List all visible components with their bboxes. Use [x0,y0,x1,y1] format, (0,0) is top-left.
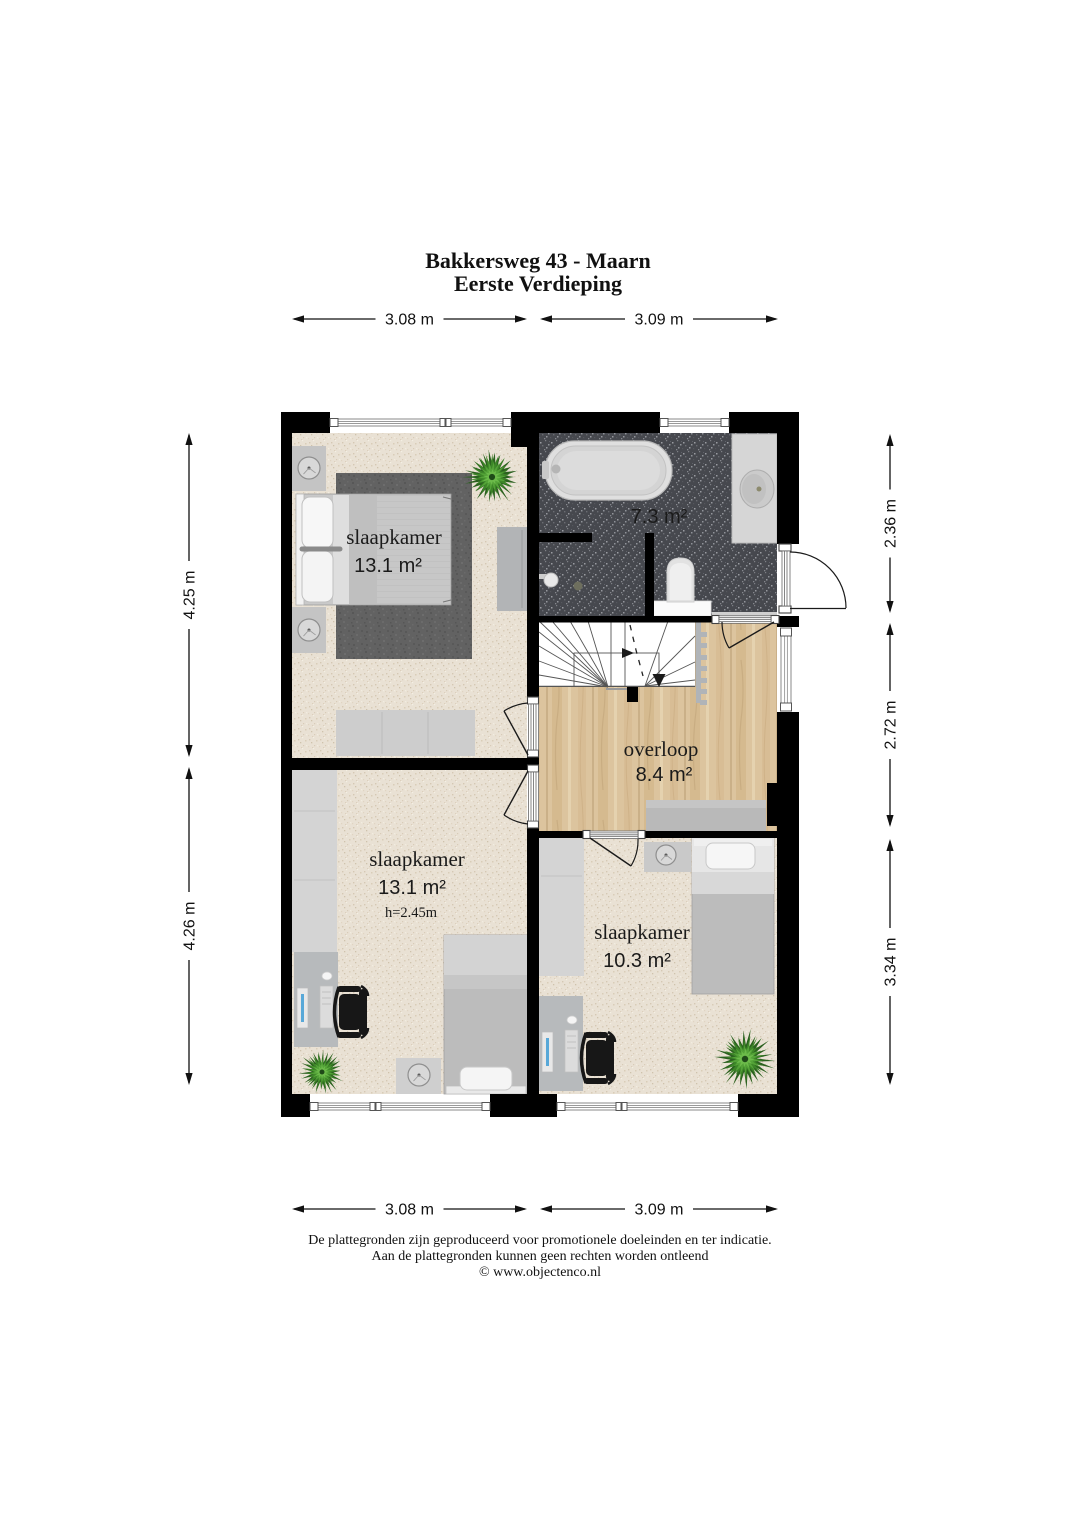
svg-text:slaapkamer: slaapkamer [369,847,465,871]
svg-text:De plattegronden zijn geproduc: De plattegronden zijn geproduceerd voor … [308,1233,771,1248]
svg-text:slaapkamer: slaapkamer [594,920,690,944]
svg-text:4.25 m: 4.25 m [182,571,199,620]
svg-text:overloop: overloop [624,737,699,761]
svg-text:h=2.45m: h=2.45m [385,905,438,921]
svg-text:3.08 m: 3.08 m [385,312,434,329]
svg-text:2.72 m: 2.72 m [883,701,900,750]
svg-text:slaapkamer: slaapkamer [346,525,442,549]
svg-text:Eerste Verdieping: Eerste Verdieping [454,271,622,296]
svg-text:Aan de plattegronden kunnen ge: Aan de plattegronden kunnen geen rechten… [371,1249,708,1264]
svg-text:3.09 m: 3.09 m [635,1202,684,1219]
svg-text:3.09 m: 3.09 m [635,312,684,329]
svg-text:4.26 m: 4.26 m [182,902,199,951]
svg-text:8.4 m²: 8.4 m² [636,764,693,786]
svg-text:13.1 m²: 13.1 m² [378,877,446,899]
svg-text:Bakkersweg 43 - Maarn: Bakkersweg 43 - Maarn [425,248,650,273]
svg-text:10.3 m²: 10.3 m² [603,950,671,972]
svg-text:3.08 m: 3.08 m [385,1202,434,1219]
svg-text:2.36 m: 2.36 m [883,499,900,548]
svg-text:© www.objectenco.nl: © www.objectenco.nl [479,1265,601,1280]
svg-text:7.3 m²: 7.3 m² [631,506,688,528]
svg-text:3.34 m: 3.34 m [883,938,900,987]
svg-text:13.1 m²: 13.1 m² [354,555,422,577]
